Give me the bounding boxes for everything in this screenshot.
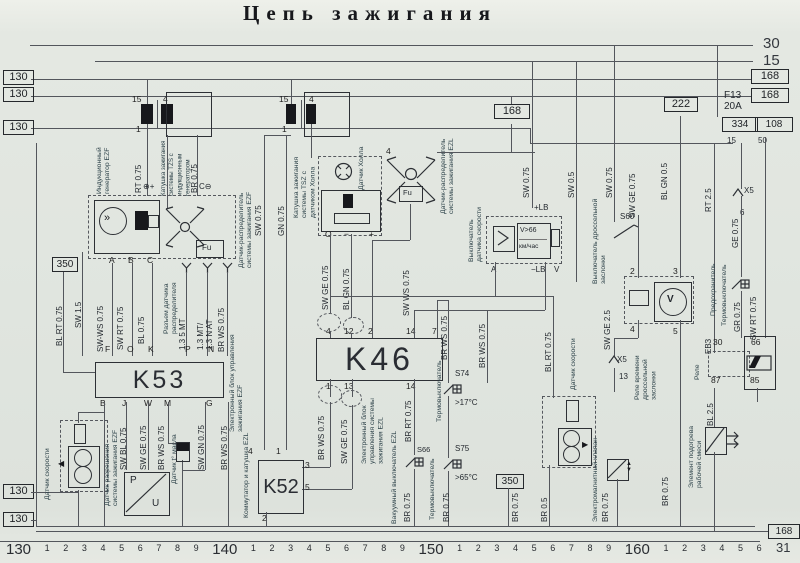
component-label-relay: Реле (694, 352, 703, 380)
terminal-plus: ⊕+ (143, 182, 154, 191)
coil-divider (157, 100, 158, 128)
wire-line (264, 135, 265, 450)
bus-30-line (30, 45, 753, 46)
wire-label: SW GE 0.75 (321, 240, 330, 310)
wire-label: SW GE 0.75 (340, 404, 349, 464)
heater-arrows-icon (727, 431, 743, 449)
hall-terminal-minus: − (344, 229, 349, 239)
terminal-c-minus: C⊖ (199, 182, 211, 191)
bus-15-label: 15 (763, 52, 780, 69)
wire-line (680, 116, 681, 278)
wire-line (351, 234, 352, 318)
wire-line (78, 412, 79, 423)
pickup-icon (135, 211, 148, 230)
bus-31-label: 31 (776, 540, 790, 555)
track-tag-130: 130 (3, 87, 34, 102)
track-tag-168: 168 (768, 524, 800, 539)
switch-id-s66: S66 (417, 445, 430, 454)
coil-winding (141, 104, 153, 124)
fu-label: Fu (202, 243, 211, 252)
wire-label: BR WS 0.75 (217, 278, 226, 352)
page-title: Цепь зажигания (0, 1, 740, 26)
track-stub (31, 520, 37, 521)
wire-label: BR 0.75 (190, 143, 199, 193)
track-tag-130: 130 (3, 120, 34, 135)
coil-divider (301, 100, 302, 128)
sensor-coil-icon (74, 449, 92, 467)
fuse-f13-label: F13 (724, 90, 741, 101)
wire-line (330, 331, 331, 338)
track-tag-168: 168 (751, 88, 789, 103)
wire-label: BR WS 0.75 (220, 404, 229, 470)
component-label-speed-switch: Выключатель датчика скорости (468, 198, 485, 262)
k52-pin-3: 3 (305, 460, 310, 470)
wire-line (148, 402, 149, 470)
k53-pin-o: O (127, 344, 134, 354)
switch-icon (612, 222, 638, 240)
track-tag-130: 130 (3, 512, 34, 527)
diode-icon: ◀ (58, 459, 64, 468)
pu-p-label: P (130, 475, 137, 486)
wire-line (372, 240, 410, 241)
wire-line (286, 135, 287, 450)
relay-pin-5: 5 (673, 326, 678, 336)
component-label-distributor-ezl: Датчик-распределитель системы зажигания … (440, 118, 457, 214)
wire-line (372, 240, 373, 338)
distributor-terminal-4: 4 (386, 146, 391, 156)
thermoswitch-icon (444, 457, 464, 471)
voltmeter-v: V (667, 294, 674, 305)
wire-line (614, 45, 615, 222)
wire-label: BR 0.75 (511, 486, 520, 522)
component-label-k46: Электронный блок управления системы зажи… (361, 380, 387, 464)
hall-sensor-icon (334, 162, 353, 181)
wire-line (330, 234, 331, 313)
wire-line (741, 196, 742, 277)
wire-line (532, 61, 533, 208)
component-label-speed-sensor: Датчик скорости (44, 408, 53, 500)
wire-line (437, 300, 448, 301)
coil-outline (166, 92, 212, 137)
block-k53: K53 (95, 362, 224, 398)
track-jog (530, 128, 531, 143)
wire-line (576, 61, 577, 282)
component-label-speed-sensor: Датчик скорости (570, 306, 579, 390)
wire-label: BR WS 0.75 (157, 404, 166, 470)
wire-line (352, 405, 353, 489)
block-k52: K52 (258, 460, 304, 514)
designation-e83: ЕВЗ (704, 326, 713, 354)
wire-line (448, 396, 449, 458)
wire-label: GR 0.75 (733, 292, 742, 332)
component-label-thermoswitch: Термовыключатель (436, 350, 445, 422)
track-line (530, 143, 733, 144)
bus-31-line (36, 531, 768, 532)
solenoid-diagonal (607, 459, 627, 479)
wire-line (545, 262, 546, 310)
wire-label: BL GN 0.5 (660, 150, 669, 200)
track-tag-222: 222 (664, 97, 698, 112)
hall-terminal-plus: + (369, 229, 374, 239)
component-label-thermoswitch: Термовыключатель (429, 430, 438, 520)
component-label-thermoswitch: Термовыключатель (721, 240, 730, 326)
thermo-temp: >17°C (455, 398, 478, 407)
wire-label: SW GN 0.75 (197, 404, 206, 470)
wire-line (638, 320, 639, 338)
wire-label: SW 1.5 (74, 278, 83, 328)
k53-pin-n: N (208, 344, 214, 354)
wire-line (717, 45, 718, 117)
terminal-15: 15 (727, 136, 736, 145)
wire-label: RT 2.5 (704, 162, 713, 212)
wire-line (414, 310, 415, 338)
wire-line (553, 296, 554, 398)
wire-line (266, 512, 267, 526)
wire-line (757, 388, 758, 402)
wire-label: SW GE 0.75 (628, 178, 637, 218)
wire-label: BL 0.75 (137, 284, 146, 344)
wire-line (638, 215, 639, 278)
wire-line (511, 96, 512, 104)
k53-pin-p: P (185, 344, 191, 354)
chevron-icon: » (104, 212, 110, 224)
wire-label: BR 0.75 (442, 486, 451, 522)
component-label-coil-tsz-hall: Катушка зажигания системы TSZ с датчиком… (293, 140, 318, 218)
wire-line (487, 310, 488, 383)
wire-line (437, 152, 535, 153)
coil-terminal-1: 1 (282, 124, 287, 134)
component-label-hall-sensor: Датчик Холла (358, 134, 373, 190)
wire-line (414, 469, 415, 526)
wire-label: SW 0.75 (522, 152, 531, 198)
terminal-v: V (554, 265, 559, 274)
relay-element-icon (746, 354, 772, 372)
wire-label: RT 0.75 (134, 143, 143, 193)
component-label-ignition-enable: Датчик разрешения системы зажигания EZF (104, 424, 124, 506)
component-label-solenoid-valve: Электромагнитный клапан (592, 416, 601, 522)
wire-line (511, 124, 512, 152)
x5-pin-13: 13 (619, 372, 628, 381)
relay-pin-3: 3 (673, 266, 678, 276)
v66-label: V>66 (520, 227, 537, 234)
k52-pin-5: 5 (305, 482, 310, 492)
pickup-core (148, 215, 159, 228)
terminal-plus-lb: +LB (534, 203, 548, 212)
wire-line (614, 338, 638, 339)
wire-line (448, 300, 449, 383)
wire-line (78, 490, 79, 526)
wire-line (765, 137, 766, 338)
resistor (551, 229, 560, 247)
wire-line (741, 143, 742, 189)
wire-line (330, 402, 331, 467)
bus-30-label: 30 (763, 35, 780, 52)
wire-line (508, 488, 509, 526)
block-k46: K46 (316, 338, 443, 381)
current-track-scale: 1301234567891401234567891501234567891601… (6, 543, 762, 558)
wire-label: 1.3 N AT (205, 292, 214, 350)
diode-icon: ▶ (582, 440, 588, 449)
wire-line (714, 452, 715, 531)
switch-id-s75: S75 (455, 444, 469, 453)
bus-15-line (95, 61, 753, 62)
component-label-k52: Коммутатор и катушка EZL (243, 378, 259, 518)
wire-label: 1.3 MT/ (196, 292, 205, 350)
wire-label: SW 0.75 (254, 192, 263, 236)
x5-connector-icon (733, 189, 743, 196)
wire-label: SW GE 0.75 (139, 404, 148, 470)
wire-label: GN 0.75 (277, 192, 286, 236)
wire-label: BL GN 0.75 (342, 240, 351, 310)
wire-label: SW 0.5 (567, 152, 576, 198)
track-tag-350: 350 (52, 257, 78, 272)
wire-label: SW WS 0.75 (402, 246, 411, 316)
pu-u-label: U (152, 498, 159, 509)
component-label-time-relay: Реле времени дроссельной заслонки (634, 330, 652, 400)
wiring-diagram: Цепь зажигания 30 15 168 168 31 168 130 … (0, 0, 800, 563)
component-label-distributor-ezf: Датчик-распределитель системы зажигания … (238, 168, 255, 268)
track-tag-108: 108 (755, 117, 793, 132)
heater-diagonal (705, 427, 725, 453)
fuse-f13-rating: 20A (724, 101, 742, 112)
frame-bottom (36, 526, 755, 527)
wire-line (182, 470, 205, 471)
connector-x5: X5 (617, 355, 627, 364)
wire-label: BR WS 0.75 (317, 400, 326, 460)
v66-units: км/час (519, 243, 538, 250)
wire-label: BL RT 0.75 (55, 286, 64, 346)
connector-x5: X5 (744, 186, 754, 195)
wire-line (147, 79, 148, 104)
sensor-coil-icon (74, 466, 92, 484)
coil-terminal-1: 1 (136, 124, 141, 134)
terminal-minus-lb: −LB (531, 265, 545, 274)
wire-label: BR WS 0.75 (478, 306, 487, 368)
wire-line (227, 272, 228, 356)
sensor-coil-icon (563, 446, 580, 463)
k53-pin-g: G (206, 398, 213, 408)
diode-pair-icon: ▲▼ (626, 461, 632, 473)
wire-label: SW RT 0.75 (749, 284, 758, 340)
oil-temp-sensor-icon (176, 442, 190, 462)
wire-label: SW-WS 0.75 (96, 278, 105, 352)
wire-line (437, 300, 438, 338)
wire-line (132, 263, 133, 356)
wire-line (63, 372, 95, 373)
track-stub (31, 492, 78, 493)
wire-line (410, 204, 411, 240)
component-label-fuse: Предохранитель (710, 240, 719, 316)
sensor-resistor (566, 400, 579, 422)
wire-label: GE 0.75 (731, 212, 740, 248)
component-label-mixture-heater: Элемент подогрева рабочей смеси (688, 402, 705, 488)
wire-line (614, 338, 615, 356)
connector-ellipse (317, 313, 341, 332)
wire-line (680, 320, 681, 526)
wire-label: BR RT 0.75 (404, 380, 413, 442)
component-label-distributor-connector: Разъем датчика распределителя (163, 248, 178, 334)
vacuum-switch-icon (406, 455, 426, 469)
wire-line (168, 402, 169, 443)
coil-terminal-15: 15 (132, 94, 141, 104)
fu-label: Fu (403, 188, 412, 197)
wire-label: 1.3 5 MT (178, 284, 187, 350)
frame-left (36, 143, 37, 526)
sensor-coil-icon (563, 430, 580, 447)
wire-label: SW GE 2.5 (603, 288, 612, 350)
wire-line (614, 368, 615, 392)
wire-label: BR 0.75 (661, 450, 670, 506)
wire-line (291, 79, 292, 104)
v66-divider (519, 239, 547, 240)
wire-line (495, 262, 496, 296)
wire-line (617, 479, 618, 526)
wire-line (414, 379, 415, 455)
wire-label: SW 0.75 (605, 152, 614, 198)
fuse-pin-30: 30 (713, 337, 722, 347)
track-tag-168-mid: 168 (494, 104, 530, 119)
wire-label: SW RT 0.75 (116, 278, 125, 350)
coil-terminal-15: 15 (279, 94, 288, 104)
wire-label: BR 0.75 (601, 480, 610, 522)
relay-coil-icon (629, 290, 649, 306)
wire-line (414, 310, 545, 311)
wire-line (112, 263, 113, 356)
wire-line (330, 296, 553, 297)
k52-pin-1: 1 (276, 446, 281, 456)
track-tag-130: 130 (3, 484, 34, 499)
hall-coil-winding (343, 194, 353, 208)
component-label-induction-generator: Индукционный генератор EZF (96, 128, 114, 194)
wire-line (152, 263, 153, 356)
k53-pin-f: F (105, 344, 110, 354)
wire-label: BL 2.5 (706, 384, 715, 426)
hall-coil-resistor (334, 213, 370, 224)
speedometer-chevron-icon (495, 229, 511, 247)
wire-label: BL RT 0.75 (544, 308, 553, 372)
thermoswitch-icon (444, 382, 464, 396)
component-label-vacuum-switch: Вакуумный выключатель EZL (391, 406, 405, 524)
switch-id-s74: S74 (455, 369, 469, 378)
track-tag-130: 130 (3, 70, 34, 85)
k53-pin-k: K (148, 344, 154, 354)
thermo-temp: >65°C (455, 473, 478, 482)
wire-label: BR 0.5 (540, 482, 549, 522)
bus-168a-line (31, 79, 752, 80)
wire-line (78, 412, 104, 413)
relay-pin-2: 2 (630, 266, 635, 276)
track-tag-334: 334 (722, 117, 758, 132)
coil-winding (286, 104, 296, 124)
wire-line (549, 465, 550, 526)
sensor-resistor (74, 424, 86, 444)
connector-ellipse (343, 317, 364, 334)
track-tag-168: 168 (751, 69, 789, 84)
